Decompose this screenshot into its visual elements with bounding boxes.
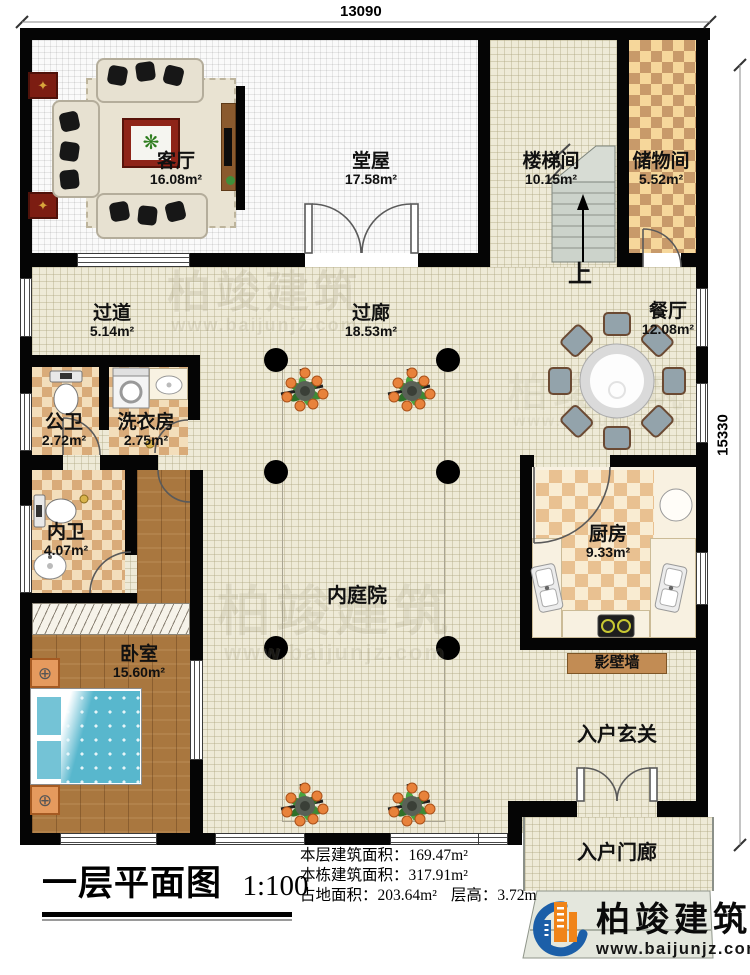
brand-logo-icon <box>530 898 588 962</box>
stat-line: 占地面积：203.64m²层高：3.72m <box>300 886 537 906</box>
room-label-laundry: 洗衣房2.75m² <box>117 412 174 449</box>
title-underline <box>42 912 292 917</box>
floor-plan: 柏竣建筑 www.baijunjz.com 柏竣建筑 www.baijunjz.… <box>0 0 750 975</box>
stove <box>598 615 634 637</box>
room-label-kitchen: 厨房9.33m² <box>586 524 630 561</box>
room-label-living: 客厅16.08m² <box>150 151 202 188</box>
room-label-screenwall: 影壁墙 <box>594 655 639 672</box>
foyer-double-door <box>577 768 657 801</box>
title-block: 一层平面图 1:100 <box>42 855 309 921</box>
plant-icon <box>281 783 328 826</box>
stairs-up-label: 上 <box>568 262 592 289</box>
stat-line: 本层建筑面积：169.47m² <box>300 846 537 866</box>
plant-icon <box>388 368 435 411</box>
kitchen-sink-right <box>654 563 687 613</box>
brand-logo: 柏竣建筑 www.baijunjz.com <box>530 898 750 962</box>
pubbath-toilet <box>50 371 82 414</box>
bath-door <box>90 552 131 593</box>
scale-label: 1:100 <box>242 870 308 902</box>
kitchen-sink-left <box>530 563 563 613</box>
area-stats: 本层建筑面积：169.47m² 本栋建筑面积：317.91m² 占地面积：203… <box>300 846 537 906</box>
brand-name: 柏竣建筑 <box>596 903 750 937</box>
plan-vector-overlay <box>0 0 750 975</box>
room-label-foyer: 入户玄关 <box>577 724 657 746</box>
room-label-stairwell: 楼梯间10.15m² <box>522 151 579 188</box>
right-dimension-label: 15330 <box>715 414 732 456</box>
room-label-passage: 过道5.14m² <box>90 303 134 340</box>
room-label-storage: 储物间5.52m² <box>632 151 689 188</box>
laundry-sink <box>156 376 182 394</box>
room-label-courtyard: 内庭院 <box>327 585 387 607</box>
room-label-bedroom: 卧室15.60m² <box>113 644 165 681</box>
brand-url: www.baijunjz.com <box>596 941 750 958</box>
room-label-bath: 内卫4.07m² <box>44 522 88 559</box>
room-label-dining: 餐厅12.08m² <box>642 301 694 338</box>
room-label-hall: 堂屋17.58m² <box>345 151 397 188</box>
plant-icon <box>388 783 435 826</box>
bedroom-door <box>158 470 190 502</box>
stat-line: 本栋建筑面积：317.91m² <box>300 866 537 886</box>
washing-machine <box>113 368 149 408</box>
room-label-corridor: 过廊18.53m² <box>345 303 397 340</box>
hall-double-door <box>305 204 418 253</box>
title-underline-thin <box>42 919 292 921</box>
floor-drain <box>80 495 88 503</box>
kitchen-table <box>660 489 692 521</box>
room-label-porch: 入户门廊 <box>577 842 657 864</box>
room-label-pubbath: 公卫2.72m² <box>42 412 86 449</box>
top-dimension-label: 13090 <box>340 3 382 20</box>
plant-icon <box>281 368 328 411</box>
storage-door <box>643 229 681 267</box>
page-title: 一层平面图 <box>42 864 222 903</box>
